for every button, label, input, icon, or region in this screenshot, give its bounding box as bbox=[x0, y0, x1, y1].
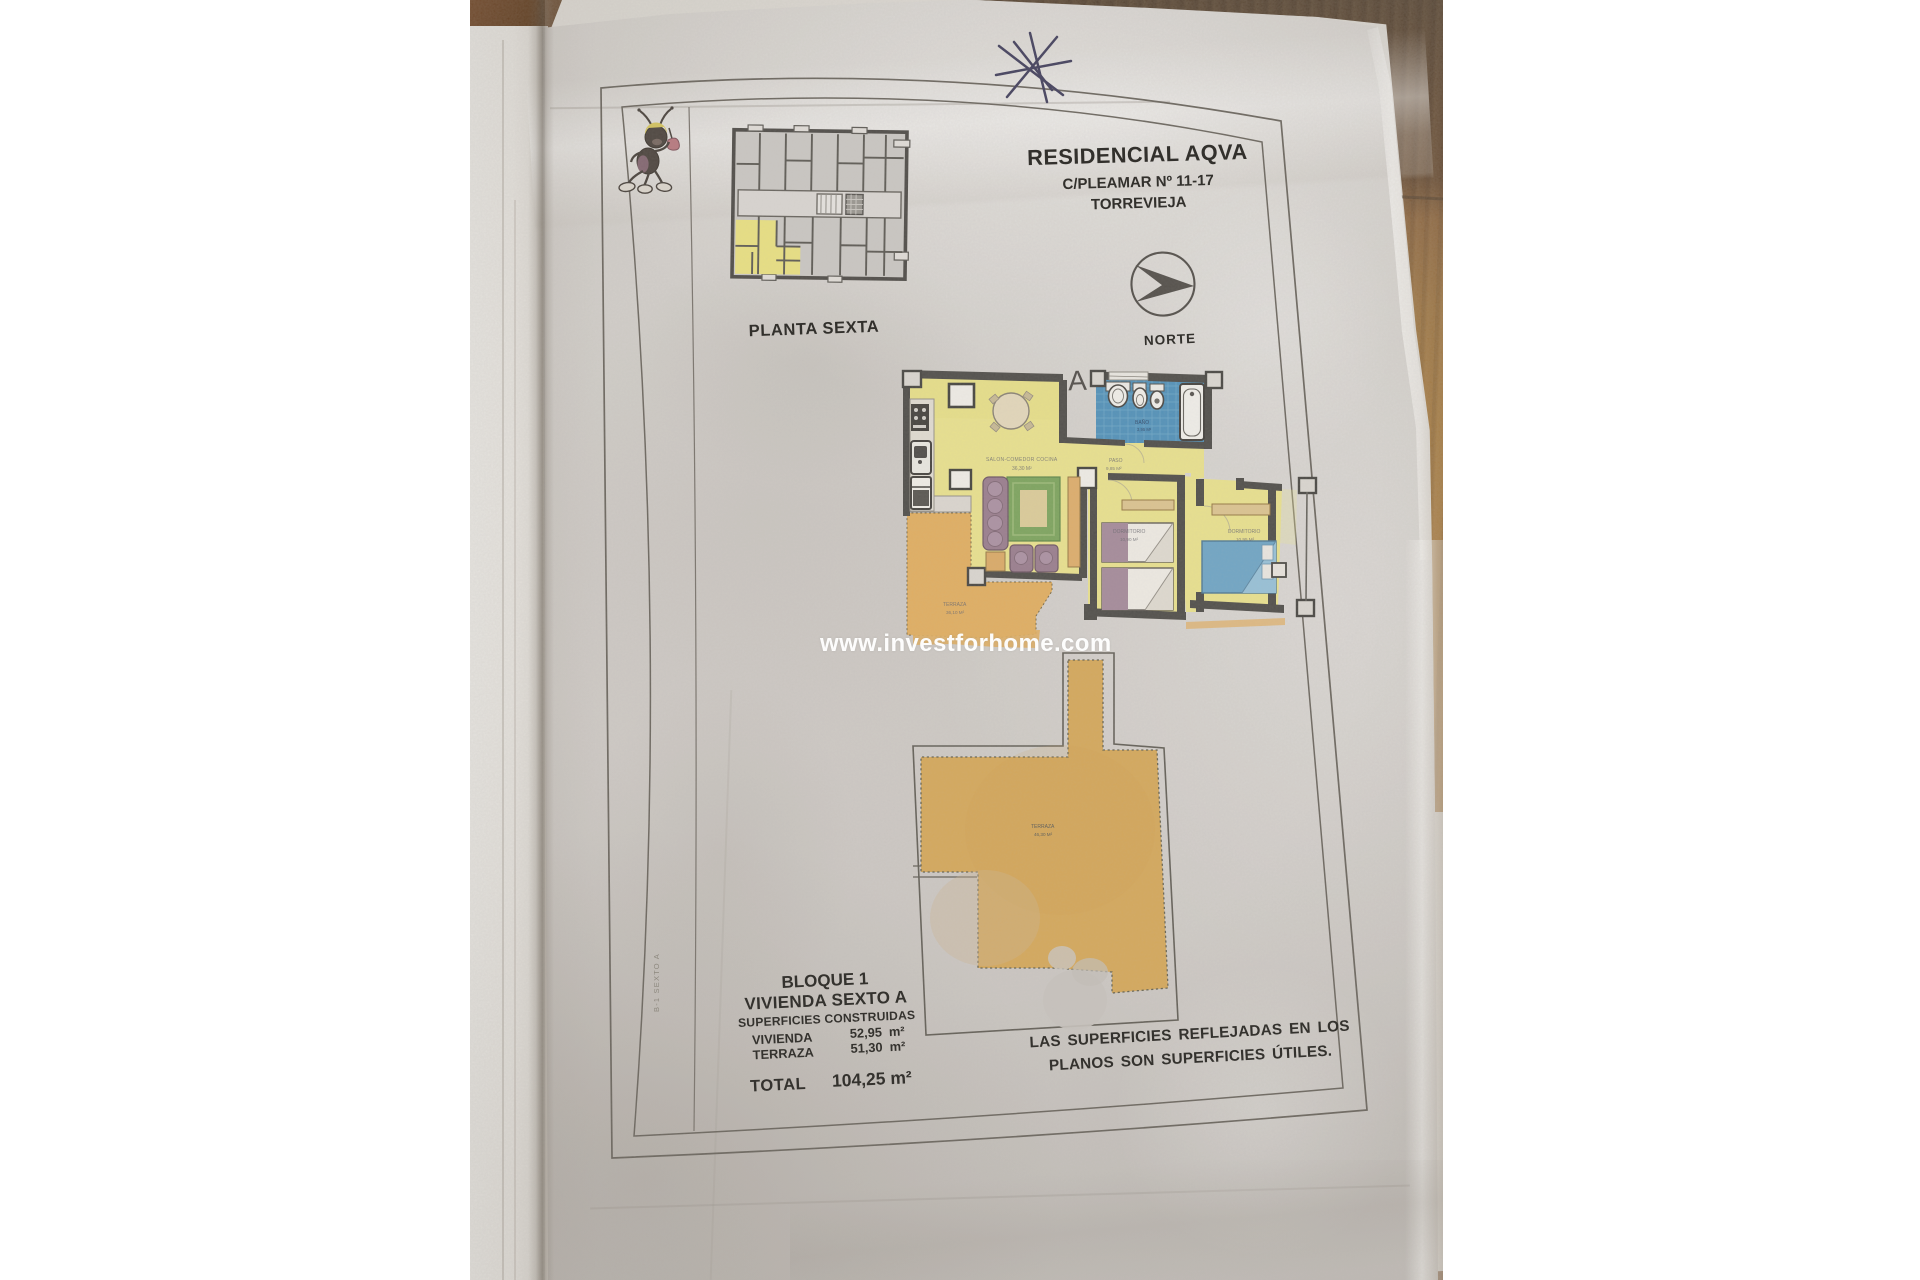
svg-text:SALON-COMEDOR COCINA: SALON-COMEDOR COCINA bbox=[986, 457, 1058, 463]
svg-text:DORMITORIO: DORMITORIO bbox=[1228, 529, 1261, 535]
svg-text:46,30 M²: 46,30 M² bbox=[1034, 832, 1053, 837]
svg-text:DORMITORIO: DORMITORIO bbox=[1113, 529, 1146, 535]
svg-text:TERRAZA: TERRAZA bbox=[943, 602, 967, 608]
svg-text:A: A bbox=[1067, 365, 1087, 397]
svg-text:3,95 M²: 3,95 M² bbox=[1137, 427, 1152, 432]
svg-text:36,10 M²: 36,10 M² bbox=[946, 610, 965, 615]
svg-text:PASO: PASO bbox=[1109, 458, 1123, 464]
svg-text:BAÑO: BAÑO bbox=[1135, 419, 1149, 426]
svg-text:10,95 M²: 10,95 M² bbox=[1236, 537, 1255, 542]
svg-text:36,30 M²: 36,30 M² bbox=[1012, 466, 1032, 472]
svg-text:10,90 M²: 10,90 M² bbox=[1120, 537, 1139, 542]
svg-text:TERRAZA: TERRAZA bbox=[1031, 824, 1055, 830]
svg-text:9,85 M²: 9,85 M² bbox=[1106, 466, 1122, 471]
